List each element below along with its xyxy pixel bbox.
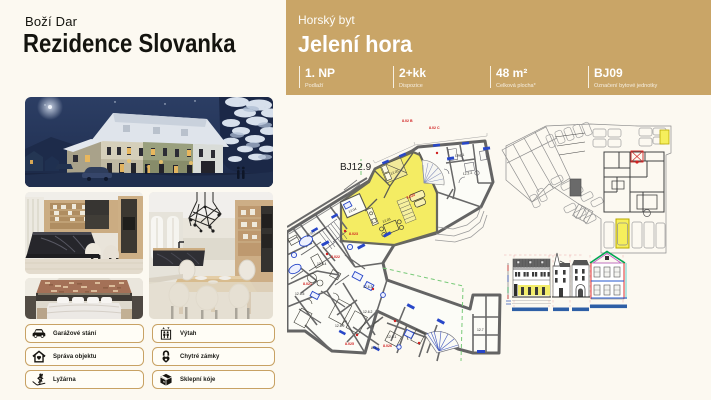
svg-text:BJ12.9: BJ12.9	[340, 162, 372, 173]
svg-text:12.6.9: 12.6.9	[335, 324, 345, 328]
svg-text:12.6.1: 12.6.1	[387, 335, 397, 339]
svg-text:8.026: 8.026	[383, 344, 392, 348]
svg-text:Ø 4.1: Ø 4.1	[371, 346, 379, 350]
svg-text:8.025: 8.025	[345, 342, 354, 346]
svg-text:8.022: 8.022	[331, 255, 340, 259]
svg-text:12.6.4: 12.6.4	[317, 262, 327, 266]
svg-text:12.6.2: 12.6.2	[363, 310, 373, 314]
svg-text:12.7: 12.7	[477, 328, 484, 332]
svg-text:8.021: 8.021	[303, 282, 312, 286]
svg-text:8.02 C: 8.02 C	[429, 126, 440, 130]
svg-text:12.6.5: 12.6.5	[295, 292, 305, 296]
svg-text:8.02 B: 8.02 B	[402, 119, 413, 123]
svg-text:12.6.3: 12.6.3	[363, 285, 373, 289]
svg-text:8.023: 8.023	[349, 232, 358, 236]
